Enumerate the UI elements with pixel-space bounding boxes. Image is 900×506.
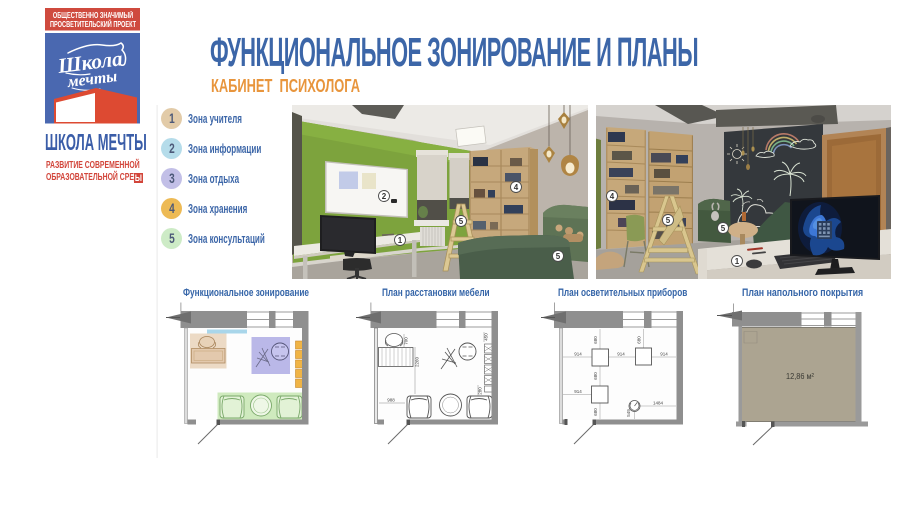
svg-text:1: 1 bbox=[735, 257, 740, 266]
svg-text:450: 450 bbox=[484, 333, 489, 341]
svg-text:280: 280 bbox=[478, 387, 483, 395]
svg-text:680: 680 bbox=[593, 336, 598, 344]
svg-text:680: 680 bbox=[593, 372, 598, 380]
svg-text:2: 2 bbox=[382, 192, 387, 201]
svg-text:5: 5 bbox=[666, 216, 671, 225]
svg-text:914: 914 bbox=[660, 352, 668, 357]
svg-text:914: 914 bbox=[574, 389, 582, 394]
svg-text:700: 700 bbox=[404, 337, 409, 345]
svg-text:988: 988 bbox=[387, 398, 395, 403]
svg-text:680: 680 bbox=[637, 336, 642, 344]
svg-text:680: 680 bbox=[593, 408, 598, 416]
svg-text:1: 1 bbox=[398, 236, 403, 245]
svg-text:1484: 1484 bbox=[653, 401, 664, 406]
svg-text:4: 4 bbox=[514, 183, 519, 192]
svg-text:914: 914 bbox=[617, 352, 625, 357]
svg-text:5: 5 bbox=[459, 217, 464, 226]
svg-text:914: 914 bbox=[574, 352, 582, 357]
svg-text:5: 5 bbox=[556, 252, 561, 261]
svg-text:5: 5 bbox=[721, 224, 726, 233]
svg-text:4: 4 bbox=[610, 192, 615, 201]
svg-text:12,86 м²: 12,86 м² bbox=[786, 371, 814, 381]
svg-text:549: 549 bbox=[626, 409, 631, 417]
svg-text:2260: 2260 bbox=[415, 356, 420, 367]
